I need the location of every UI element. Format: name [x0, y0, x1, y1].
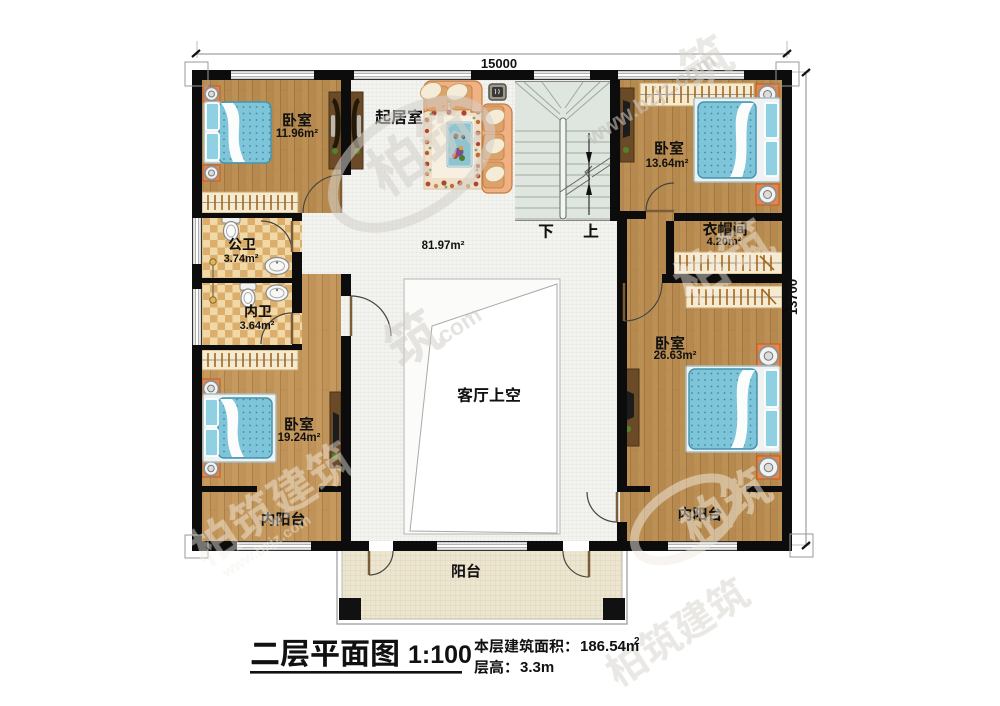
svg-text:3.3m: 3.3m — [520, 659, 554, 676]
svg-text:1:100: 1:100 — [408, 641, 472, 669]
svg-text:13700: 13700 — [785, 279, 800, 315]
svg-text:3.74m²: 3.74m² — [224, 253, 259, 265]
svg-text:2: 2 — [634, 636, 640, 647]
svg-text:81.97m²: 81.97m² — [422, 240, 465, 252]
svg-text:13.64m²: 13.64m² — [646, 158, 689, 170]
svg-text:26.63m²: 26.63m² — [654, 350, 697, 362]
svg-text:11.96m²: 11.96m² — [276, 128, 318, 140]
svg-text:186.54m: 186.54m — [580, 638, 639, 655]
svg-text:19.24m²: 19.24m² — [278, 432, 321, 444]
svg-text:3.64m²: 3.64m² — [240, 320, 275, 332]
svg-text:15000: 15000 — [481, 56, 517, 71]
